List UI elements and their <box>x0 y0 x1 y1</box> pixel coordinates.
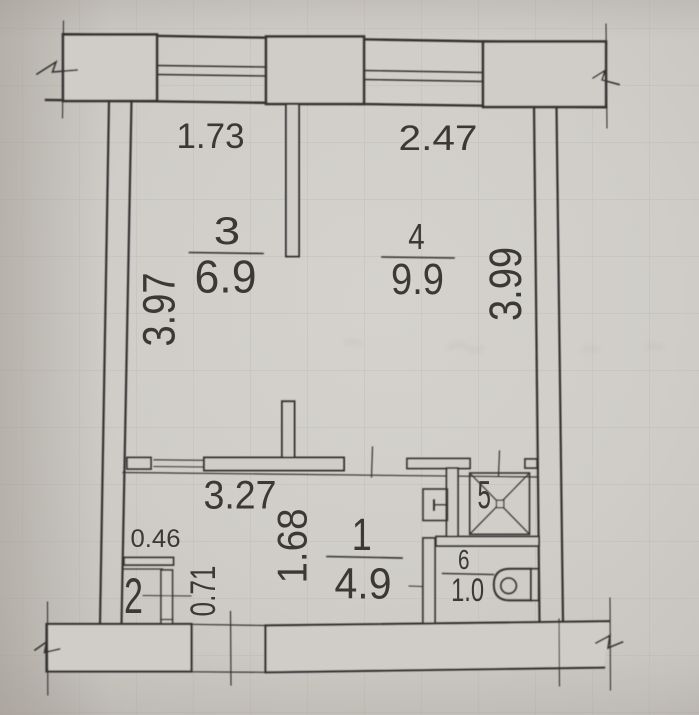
svg-text:3.27: 3.27 <box>204 474 277 518</box>
svg-text:2.47: 2.47 <box>399 119 478 158</box>
svg-text:3: 3 <box>214 210 240 253</box>
svg-text:5: 5 <box>477 473 490 516</box>
svg-text:1.0: 1.0 <box>451 572 484 608</box>
svg-text:0.46: 0.46 <box>131 525 181 553</box>
svg-text:0.71: 0.71 <box>184 566 223 617</box>
svg-text:1.73: 1.73 <box>177 117 245 156</box>
svg-text:3.99: 3.99 <box>480 247 531 321</box>
svg-text:6.9: 6.9 <box>195 251 257 303</box>
svg-text:1.68: 1.68 <box>269 509 316 584</box>
svg-text:4.9: 4.9 <box>335 560 392 609</box>
svg-text:1: 1 <box>352 509 372 560</box>
svg-text:4: 4 <box>408 216 424 256</box>
svg-text:9.9: 9.9 <box>391 255 444 304</box>
svg-text:2: 2 <box>124 568 143 624</box>
svg-text:3.97: 3.97 <box>134 273 185 347</box>
